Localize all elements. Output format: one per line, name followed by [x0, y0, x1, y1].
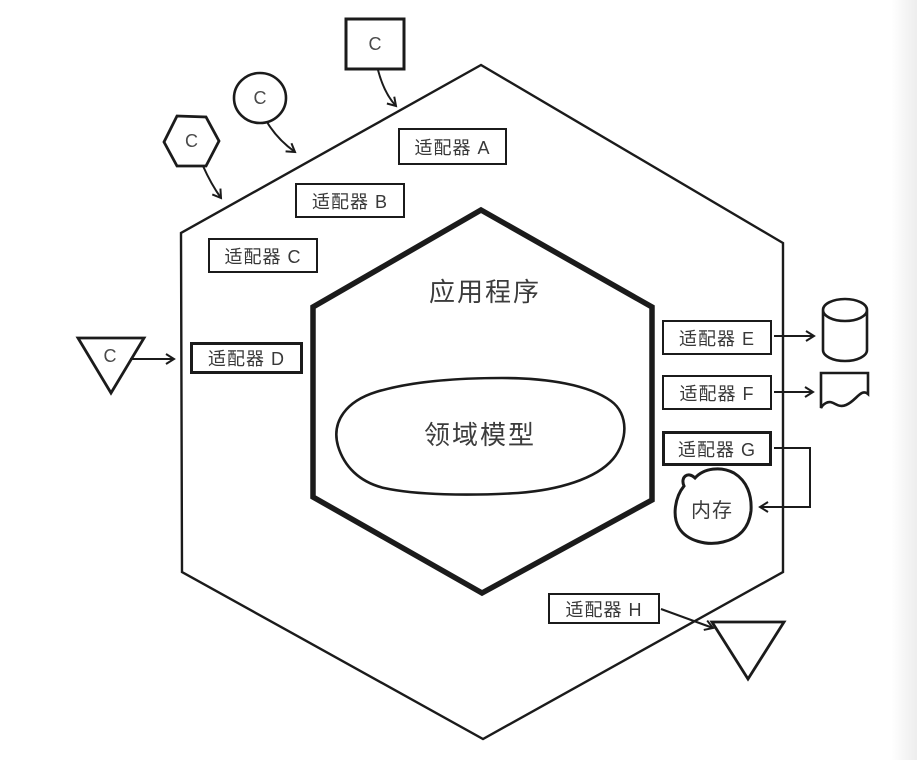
adapter-b-label: 适配器 B	[312, 188, 388, 214]
adapter-f-label: 适配器 F	[680, 380, 755, 406]
client-square-letter: C	[346, 19, 404, 69]
arrow-hexclient-to-hexagon	[203, 166, 221, 198]
adapter-h-box: 适配器 H	[548, 593, 660, 624]
arrow-ellipse-to-hexagon	[267, 122, 295, 152]
adapter-a-box: 适配器 A	[398, 128, 507, 165]
diagram-linework	[0, 0, 917, 760]
adapter-e-label: 适配器 E	[679, 325, 755, 351]
adapter-f-box: 适配器 F	[662, 375, 772, 410]
domain-model-label: 领域模型	[390, 416, 570, 450]
adapter-a-label: 适配器 A	[414, 134, 490, 160]
adapter-h-label: 适配器 H	[566, 596, 643, 622]
adapter-b-box: 适配器 B	[295, 183, 405, 218]
output-triangle-shape	[712, 622, 784, 679]
adapter-d-box: 适配器 D	[190, 342, 303, 374]
client-hexagon-letter: C	[164, 116, 219, 166]
adapter-g-box: 适配器 G	[662, 431, 772, 466]
client-triangle-letter: C	[83, 341, 137, 371]
document-icon	[821, 373, 868, 408]
adapter-g-label: 适配器 G	[678, 436, 756, 462]
adapter-c-label: 适配器 C	[225, 243, 302, 269]
adapter-e-box: 适配器 E	[662, 320, 772, 355]
application-label: 应用程序	[395, 273, 575, 307]
client-ellipse-letter: C	[234, 73, 286, 123]
arrow-square-to-hexagon	[378, 70, 396, 106]
database-cylinder-icon	[823, 299, 867, 361]
adapter-d-label: 适配器 D	[208, 345, 285, 371]
memory-label: 内存	[682, 496, 742, 520]
hexagonal-architecture-diagram: 适配器 A 适配器 B 适配器 C 适配器 D 适配器 E 适配器 F 适配器 …	[0, 0, 917, 760]
adapter-c-box: 适配器 C	[208, 238, 318, 273]
